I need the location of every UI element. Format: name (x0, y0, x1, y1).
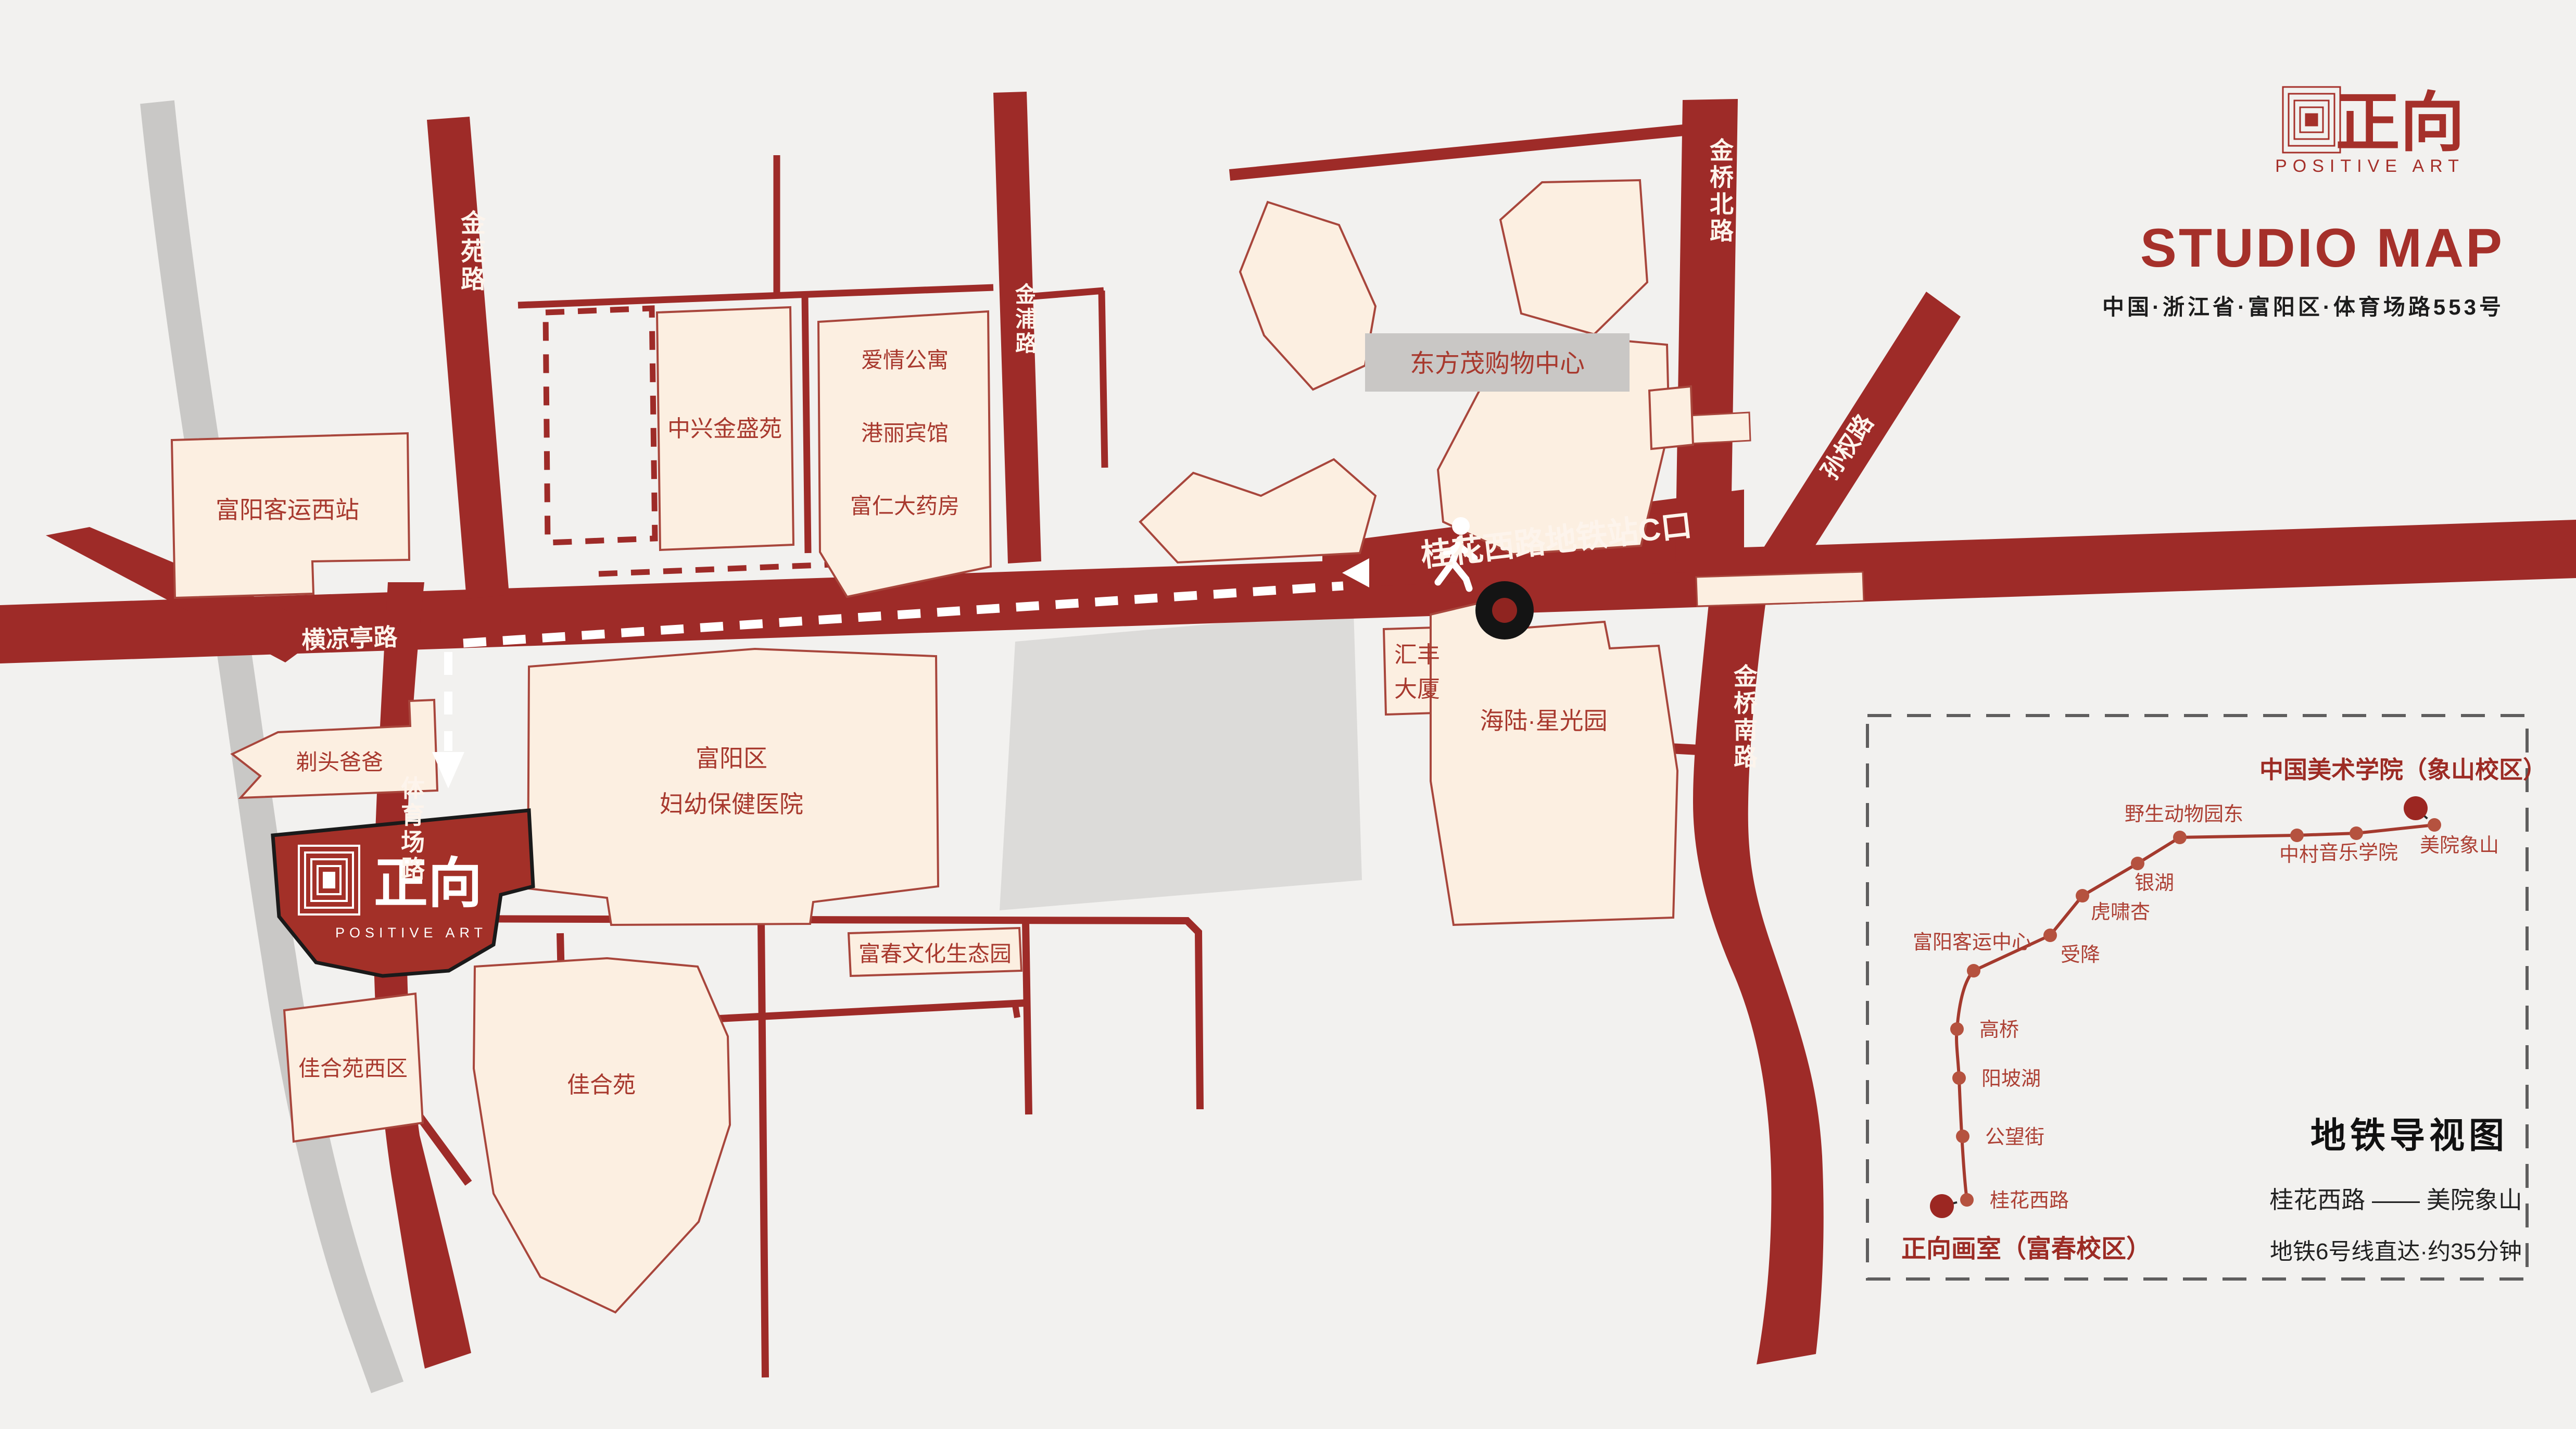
label-dongfangmao: 东方茂购物中心 (1410, 350, 1585, 378)
label-road-jinpu: 金浦路 (1015, 282, 1038, 356)
station-label: 音乐学院 (2319, 842, 2398, 864)
studio-logo-cn: 正向 (374, 854, 482, 914)
minor-road (1102, 291, 1105, 468)
label-fuchun-park: 富春文化生态园 (858, 942, 1012, 966)
panel-note: 地铁6号线直达·约35分钟 (2270, 1239, 2522, 1264)
station-label: 富阳客运中心 (1913, 932, 2031, 954)
label-road-jinqiao-south: 金桥南路 (1733, 663, 1758, 771)
station-label: 受降 (2061, 944, 2100, 966)
station-label: 虎啸杏 (2091, 901, 2150, 923)
label-jiahe: 佳合苑 (567, 1072, 636, 1098)
metro-endpoint-start-label: 正向画室（富春校区） (1901, 1235, 2151, 1263)
station-label: 阳坡湖 (1981, 1068, 2041, 1090)
panel-route: 桂花西路 —— 美院象山 (2269, 1186, 2522, 1213)
station-label: 野生动物园东 (2125, 804, 2243, 825)
label-huifeng-1: 汇丰 (1394, 642, 1440, 668)
label-hospital-2: 妇幼保健医院 (660, 791, 803, 818)
label-zhongxing: 中兴金盛苑 (667, 416, 782, 442)
station-label: 公望街 (1985, 1126, 2044, 1148)
label-titou: 剃头爸爸 (296, 750, 383, 774)
studio-map-poster: 富阳客运西站 中兴金盛苑 爱情公寓 港丽宾馆 富仁大药房 东方茂购物中心 汇丰 … (0, 0, 2576, 1429)
minor-road (805, 295, 808, 553)
metro-endpoint-start-dot (1930, 1194, 1954, 1218)
label-gangli: 港丽宾馆 (861, 421, 949, 445)
station-label: 银湖 (2135, 872, 2174, 894)
minor-road (761, 921, 765, 1377)
address: 中国·浙江省·富阳区·体育场路553号 (2102, 295, 2504, 319)
label-road-hengliangting: 横凉亭路 (301, 623, 399, 654)
overpass-bar (1696, 572, 1864, 606)
station-label: 中村 (2279, 844, 2319, 866)
label-hailu: 海陆·星光园 (1480, 707, 1607, 734)
minor-road (1026, 921, 1029, 1114)
panel-title: 地铁导视图 (2310, 1116, 2508, 1156)
label-road-tiyuchang: 体育场路 (401, 775, 425, 883)
building-hospital (528, 649, 938, 925)
label-hospital-1: 富阳区 (696, 745, 767, 772)
page-title: STUDIO MAP (2140, 218, 2504, 279)
station-label: 高桥 (1979, 1019, 2019, 1041)
metro-endpoint-end-dot (2404, 796, 2428, 820)
logo-cn: 正向 (2335, 87, 2465, 159)
label-huifeng-2: 大厦 (1394, 676, 1440, 702)
building-dongfangmao-5 (1649, 386, 1693, 449)
station-label: 美院象山 (2420, 835, 2499, 857)
label-jiahe-west: 佳合苑西区 (298, 1056, 408, 1081)
logo-en: POSITIVE ART (2275, 156, 2465, 176)
label-road-jinqiao-north: 金桥北路 (1709, 137, 1734, 245)
building-hailu (1431, 601, 1677, 925)
label-road-jinyuan: 金苑路 (460, 210, 486, 294)
metro-station-marker-core (1492, 598, 1517, 623)
label-aiqing: 爱情公寓 (861, 348, 949, 372)
minor-road (1015, 1005, 1017, 1018)
label-furen: 富仁大药房 (850, 494, 959, 518)
station-label: 桂花西路 (1990, 1190, 2069, 1212)
studio-logo-en: POSITIVE ART (335, 925, 487, 941)
label-fuyang-west-bus: 富阳客运西站 (216, 496, 359, 523)
metro-endpoint-end-label: 中国美术学院（象山校区） (2259, 756, 2547, 783)
gray-block (1000, 611, 1362, 910)
